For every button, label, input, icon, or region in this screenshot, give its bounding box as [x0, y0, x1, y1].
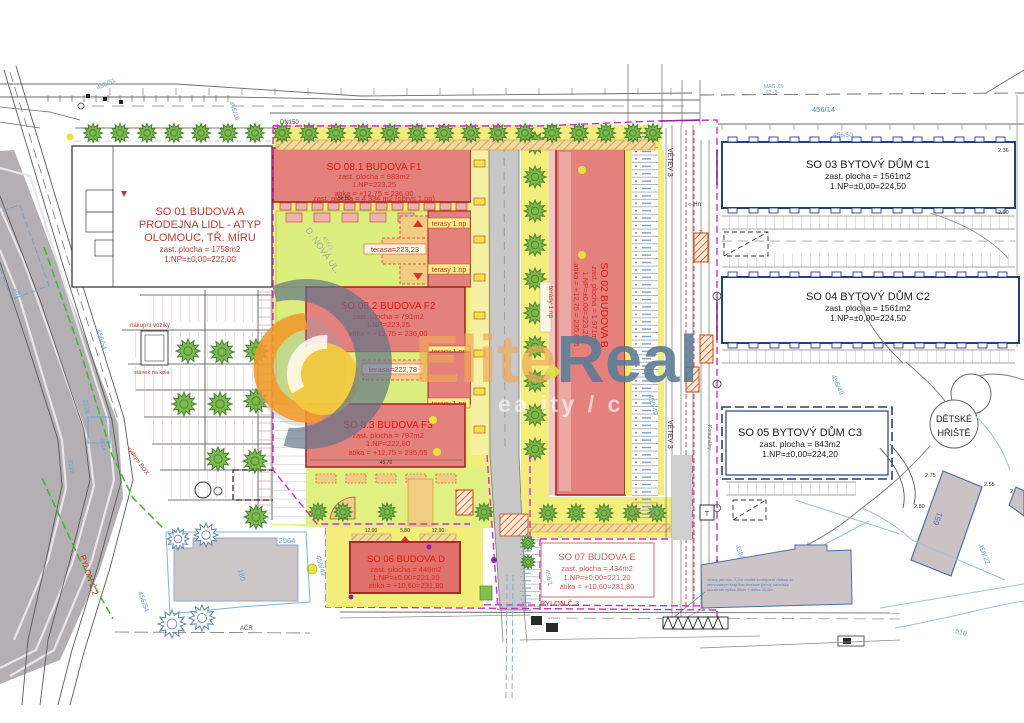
svg-text:1.NP=±0,00=221,20: 1.NP=±0,00=221,20	[563, 573, 630, 582]
svg-text:SO 01 BUDOVA A: SO 01 BUDOVA A	[155, 206, 245, 218]
svg-text:ea ity / c: ea ity / c	[498, 391, 624, 417]
svg-text:zast. plocha = 1561m2: zast. plocha = 1561m2	[825, 171, 911, 181]
svg-text:2564: 2564	[279, 536, 296, 545]
svg-text:12,90: 12,90	[365, 528, 378, 534]
svg-text:1.NP=±0,00=224,20: 1.NP=±0,00=224,20	[762, 449, 838, 459]
svg-text:PRODEJNA LIDL - ATYP: PRODEJNA LIDL - ATYP	[139, 219, 261, 231]
svg-text:1.NP=222,80: 1.NP=222,80	[366, 439, 410, 448]
svg-text:zast. plocha = 1561m2: zast. plocha = 1561m2	[825, 303, 911, 313]
svg-text:atika = +10,60=231,80: atika = +10,60=231,80	[560, 582, 635, 591]
svg-text:stouženík výška 35cm + délka 3: stouženík výška 35cm + délka 35,0m	[707, 587, 773, 592]
svg-text:SO 03 BYTOVÝ DŮM C1: SO 03 BYTOVÝ DŮM C1	[806, 158, 930, 171]
svg-text:atika = +12,75 = 235,55: atika = +12,75 = 235,55	[348, 448, 427, 457]
svg-text:SO 05 BYTOVÝ DŮM C3: SO 05 BYTOVÝ DŮM C3	[738, 426, 862, 439]
svg-text:T: T	[705, 511, 710, 518]
svg-text:HŘIŠTĚ: HŘIŠTĚ	[937, 428, 970, 438]
svg-text:2.36: 2.36	[998, 148, 1009, 154]
svg-text:1.NP=±0,00=224,50: 1.NP=±0,00=224,50	[830, 181, 906, 191]
svg-text:SO 06 BUDOVA D: SO 06 BUDOVA D	[367, 554, 445, 565]
svg-text:DĚTSKÉ: DĚTSKÉ	[936, 414, 972, 424]
svg-text:zast. plocha = 434m2: zast. plocha = 434m2	[561, 564, 633, 573]
svg-text:stánek na kola: stánek na kola	[134, 370, 170, 376]
svg-text:terasy 1.np: terasy 1.np	[432, 267, 467, 274]
svg-text:terasy 1.np: terasy 1.np	[432, 221, 467, 228]
svg-text:56,50: 56,50	[338, 196, 351, 202]
svg-text:2.80: 2.80	[914, 504, 925, 510]
svg-text:SO 04 BYTOVÝ DŮM C2: SO 04 BYTOVÝ DŮM C2	[806, 290, 930, 303]
svg-text:nákupní vozíky: nákupní vozíky	[130, 323, 170, 329]
svg-text:1.NP=±0,00=222,00: 1.NP=±0,00=222,00	[164, 255, 236, 264]
svg-text:terasa=223,23: terasa=223,23	[371, 245, 419, 254]
svg-text:5,80: 5,80	[400, 528, 410, 534]
svg-text:2.75: 2.75	[925, 473, 936, 479]
svg-text:·02··8··: ·02··8··	[764, 90, 781, 96]
svg-text:SO 07 BUDOVA E: SO 07 BUDOVA E	[558, 552, 635, 563]
svg-text:Komunálny: Komunálny	[706, 425, 712, 451]
svg-text:terasy 1.np: terasy 1.np	[547, 286, 554, 319]
svg-text:zast. plocha = 1758m2: zast. plocha = 1758m2	[160, 245, 241, 254]
svg-text:VĚTEV 3: VĚTEV 3	[666, 420, 675, 449]
svg-text:atika = +10,60=231,80: atika = +10,60=231,80	[369, 581, 444, 590]
svg-text:1.NP=±0,00=224,50: 1.NP=±0,00=224,50	[830, 313, 906, 323]
svg-text:2.00: 2.00	[998, 210, 1009, 216]
svg-text:45,70: 45,70	[380, 460, 393, 466]
svg-text:PYLON Č.3: PYLON Č.3	[540, 599, 579, 608]
svg-text:zast. plocha = 4 334 m2 (obrys: zast. plocha = 4 334 m2 (obrys 1.pp)	[313, 194, 435, 203]
svg-text:1.NP=223,25: 1.NP=223,25	[352, 180, 396, 189]
svg-text:12,90: 12,90	[432, 528, 445, 534]
svg-text:456/14: 456/14	[812, 105, 835, 114]
svg-text:2.55: 2.55	[984, 482, 995, 488]
svg-text:○ Hn: ○ Hn	[688, 202, 701, 208]
svg-text:zast. plocha = 843m2: zast. plocha = 843m2	[759, 439, 840, 449]
svg-text:OLOMOUC, TŘ. MÍRU: OLOMOUC, TŘ. MÍRU	[144, 231, 256, 244]
svg-text:VĚTEV 3: VĚTEV 3	[666, 148, 675, 177]
svg-text:AČR: AČR	[240, 625, 253, 632]
svg-text:EliteReal: EliteReal	[415, 322, 698, 397]
